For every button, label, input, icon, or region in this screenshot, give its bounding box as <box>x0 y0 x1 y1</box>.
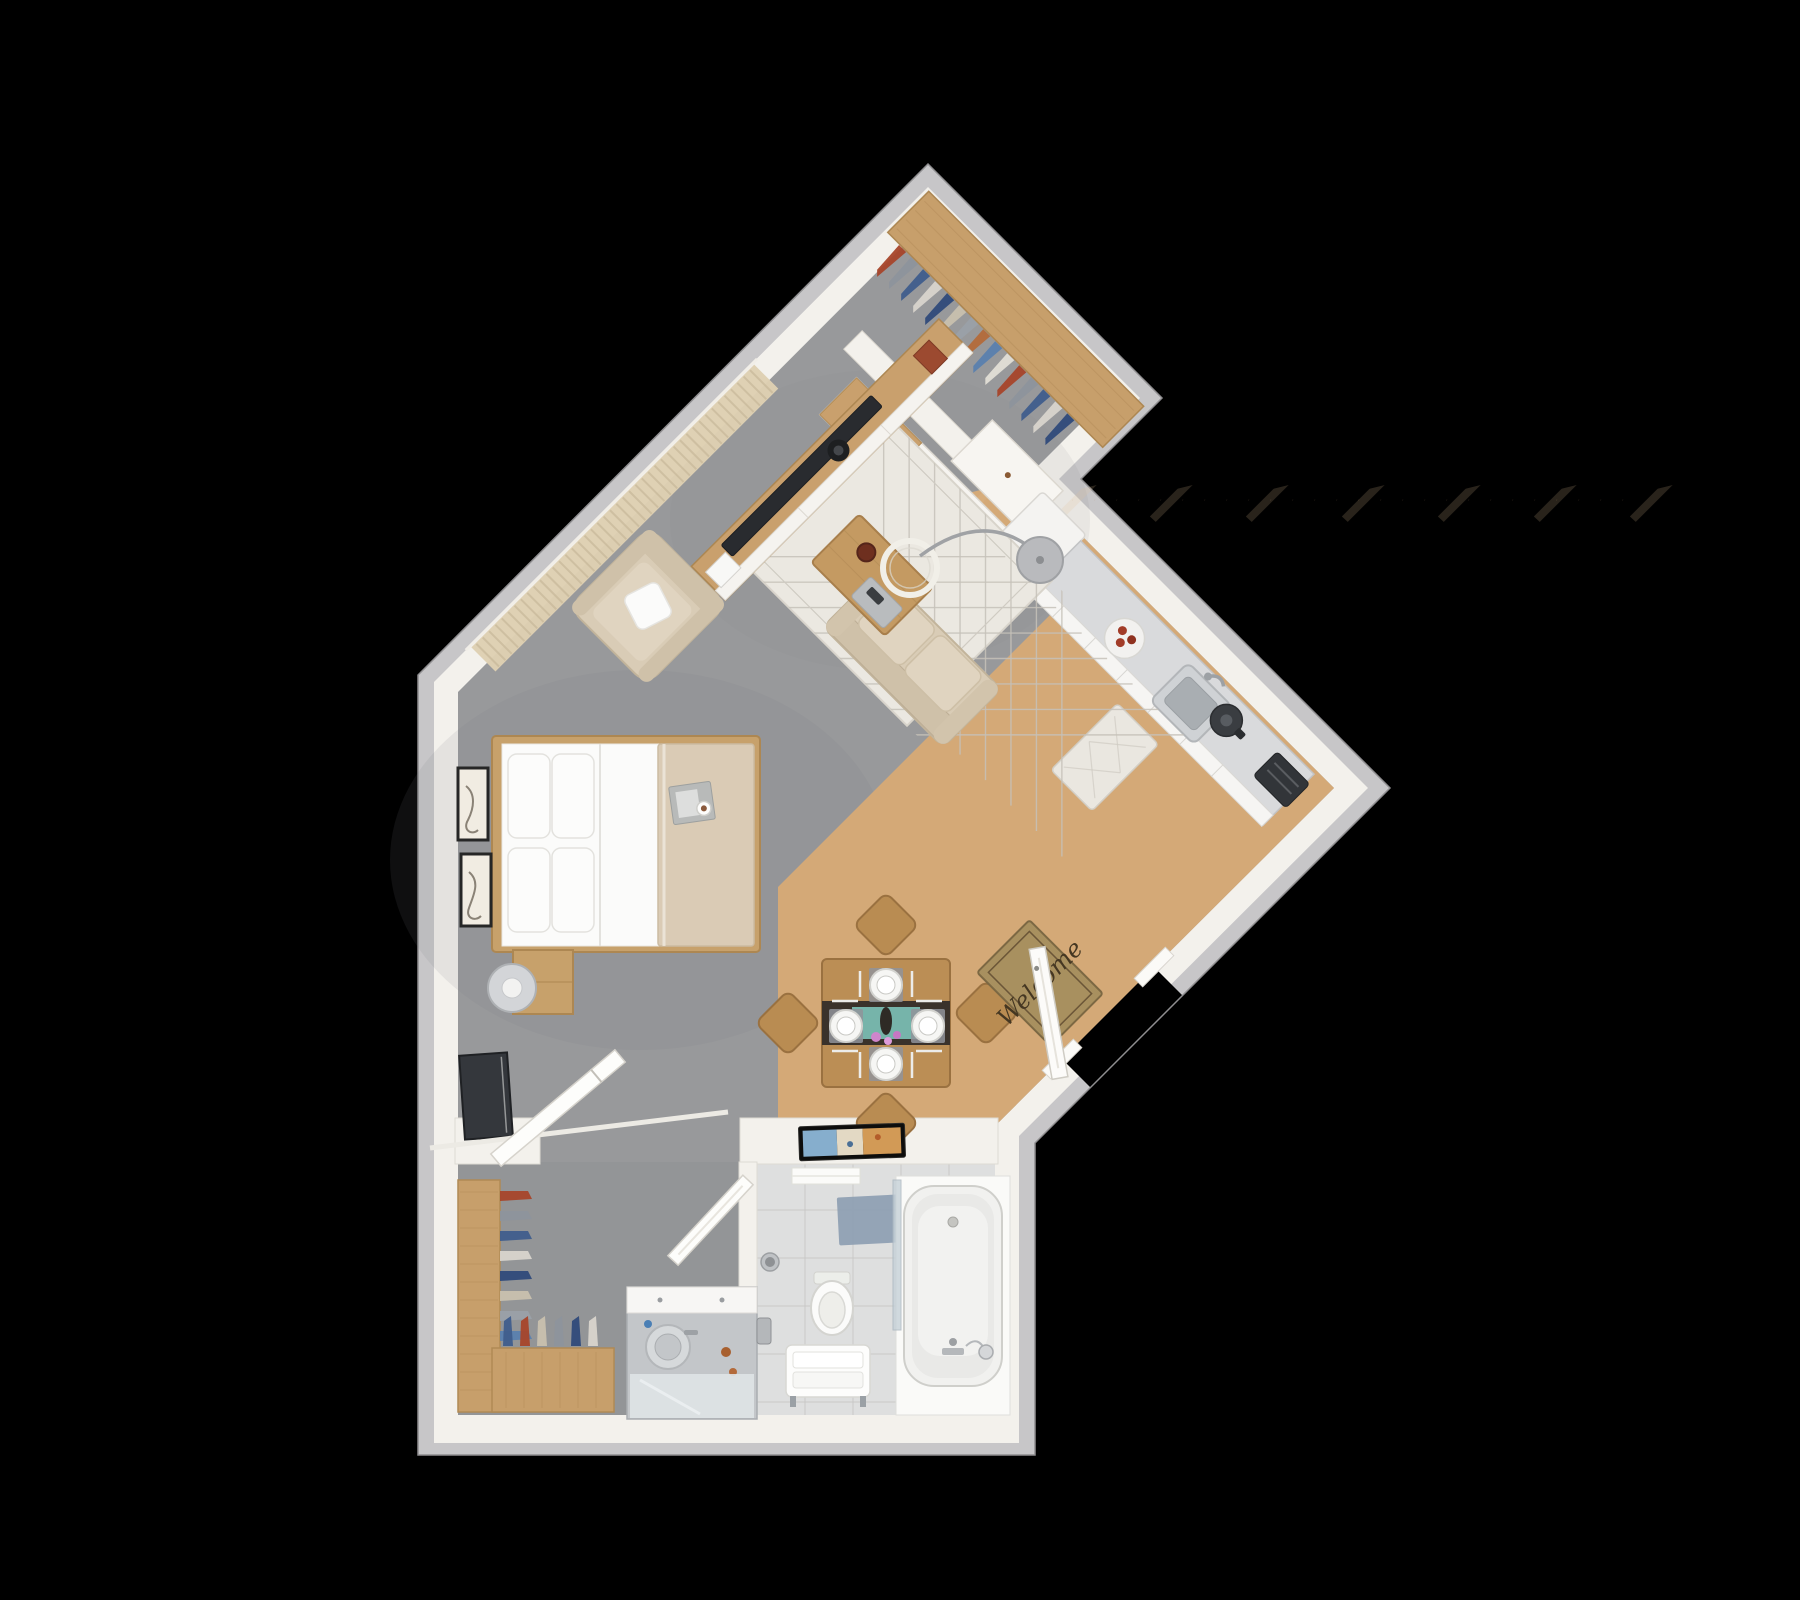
folded-towel <box>793 1352 863 1368</box>
toilet-seat <box>819 1292 845 1328</box>
flower <box>884 1037 892 1045</box>
handheld-shower <box>979 1345 993 1359</box>
artwork-sky <box>803 1130 838 1157</box>
arc-lamp-base-dot <box>1036 556 1044 564</box>
tub-drain <box>948 1217 958 1227</box>
flower <box>871 1032 881 1042</box>
wall-artwork-tablet <box>798 1123 905 1161</box>
bathroom-vanity <box>627 1287 757 1419</box>
toothbrush-cup <box>644 1320 652 1328</box>
plate-inner <box>877 1055 895 1073</box>
breakfast-tray <box>669 781 716 824</box>
soap-bottle <box>721 1347 731 1357</box>
bench-leg <box>790 1396 796 1407</box>
artwork-figures <box>863 1127 902 1154</box>
vanity-cabinet-top <box>627 1287 757 1313</box>
bed-duvet <box>658 744 754 946</box>
bed <box>492 736 760 952</box>
trash-can-inner <box>765 1257 775 1267</box>
plate-inner <box>877 976 895 994</box>
bench-leg <box>860 1396 866 1407</box>
centerpiece-vase <box>880 1007 892 1035</box>
shower-glass-screen <box>893 1180 901 1330</box>
toilet-paper-holder <box>757 1318 771 1344</box>
vanity-handle <box>720 1298 725 1303</box>
vanity-handle <box>658 1298 663 1303</box>
wall-tv-screen <box>459 1052 513 1139</box>
bedside-lamp-top <box>502 978 522 998</box>
tub-faucet <box>942 1348 964 1355</box>
picture-frame <box>461 854 491 926</box>
bath-mat-wrap <box>837 1194 899 1245</box>
bathtub-floor <box>918 1206 988 1356</box>
floor-plan-stage: Welcome <box>0 0 1800 1600</box>
vanity-sink-basin <box>655 1334 681 1360</box>
pillow <box>552 754 594 838</box>
flower <box>893 1031 901 1039</box>
plate-inner <box>919 1017 937 1035</box>
floor-plan-canvas: Welcome <box>0 0 1800 1600</box>
plate-inner <box>837 1017 855 1035</box>
pillow <box>508 754 550 838</box>
wall-tv <box>459 1052 513 1139</box>
vanity-reflection <box>630 1374 754 1418</box>
book <box>675 789 700 818</box>
vanity-faucet <box>684 1330 698 1335</box>
tub-faucet-handle <box>949 1338 957 1346</box>
folded-towel <box>793 1372 863 1388</box>
bath-mat <box>837 1194 899 1245</box>
pillow <box>552 848 594 932</box>
pillow <box>508 848 550 932</box>
